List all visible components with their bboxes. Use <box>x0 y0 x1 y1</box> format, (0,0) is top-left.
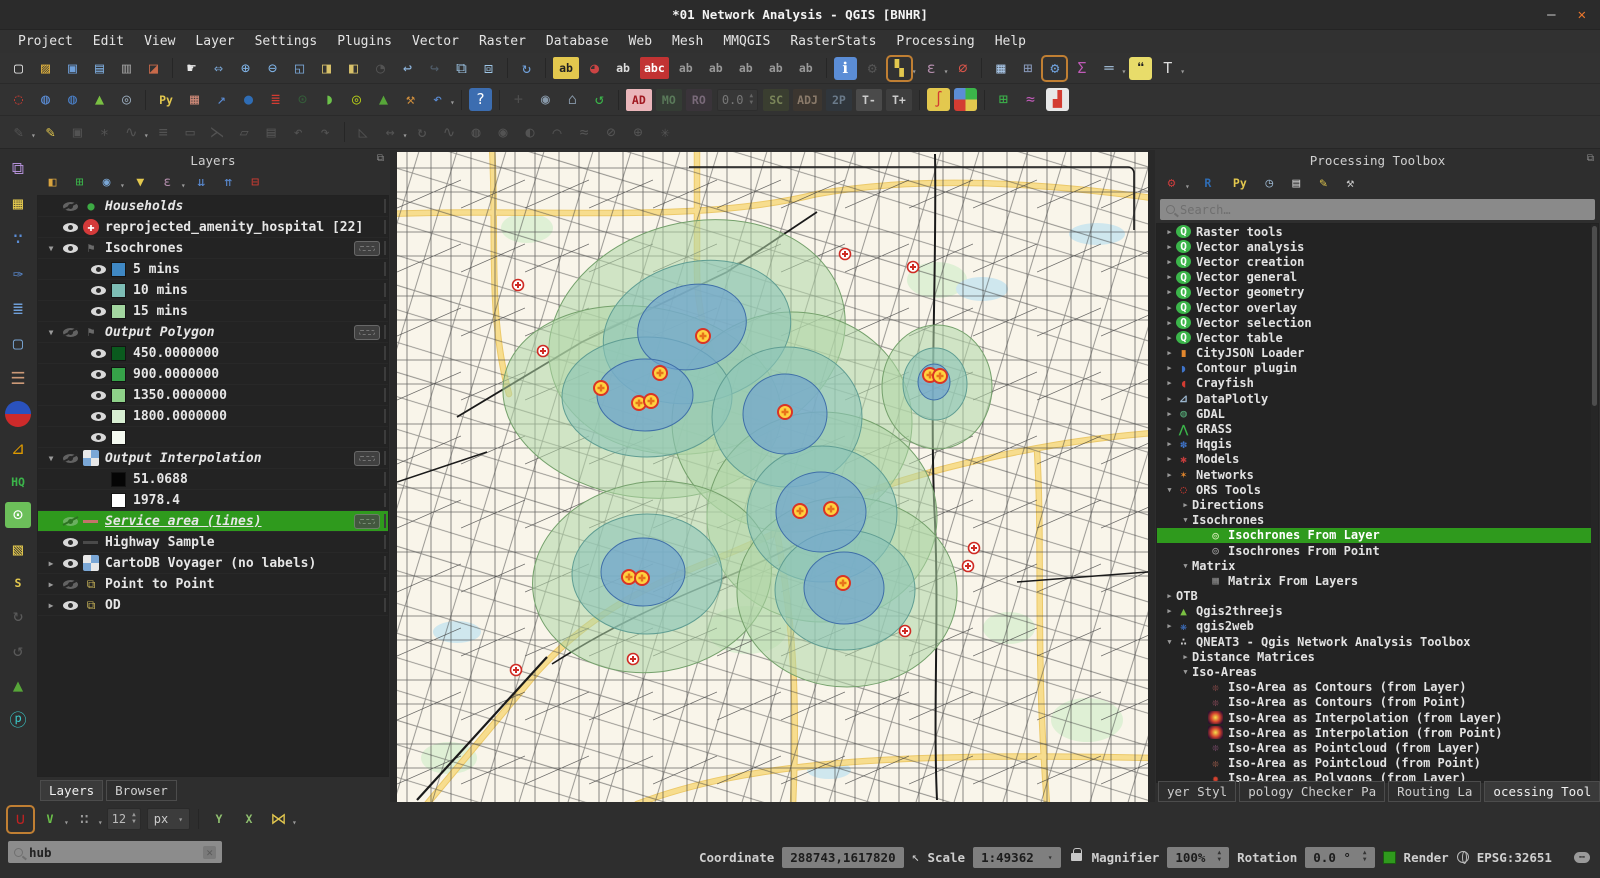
zoom-last-icon[interactable]: ↩ <box>396 57 419 80</box>
qgis2threejs-icon[interactable]: ▲ <box>88 88 111 111</box>
angle-spin[interactable]: 0.0▲▼ <box>717 89 758 111</box>
deselect-all-icon[interactable]: ∅ <box>951 57 974 80</box>
add-part-icon[interactable]: ◉ <box>491 121 514 144</box>
current-edits-icon[interactable]: ✎ <box>7 121 30 144</box>
layer-row-highway-sample[interactable]: Highway Sample <box>38 532 388 553</box>
select-features-dropdown-icon[interactable]: ▾ <box>912 67 917 76</box>
visibility-eye-icon[interactable] <box>91 391 106 400</box>
undo-plugin-dropdown-icon[interactable]: ▾ <box>450 98 455 107</box>
layer-row-5-mins[interactable]: 5 mins <box>38 259 388 280</box>
models-menu-dropdown-icon[interactable]: ▾ <box>1185 182 1190 191</box>
layout-manager-icon[interactable]: ▥ <box>115 57 138 80</box>
processing-search-input[interactable] <box>1180 203 1589 217</box>
add-delimited-text-icon[interactable]: ∵ <box>5 226 31 252</box>
measure-dropdown-icon[interactable]: ▾ <box>1121 67 1126 76</box>
rotation-spin[interactable]: 0.0 °▲▼ <box>1305 847 1374 868</box>
expander-icon[interactable]: ▶ <box>1163 471 1176 479</box>
undo-plugin-icon[interactable]: ↶ <box>426 88 449 111</box>
vertex-tool-icon[interactable]: ◺ <box>352 121 375 144</box>
algorithm-row-grass[interactable]: ▶⋀GRASS <box>1157 421 1598 436</box>
paste-features-icon[interactable]: ▤ <box>260 121 283 144</box>
history-icon[interactable]: ◷ <box>1259 173 1280 194</box>
menu-vector[interactable]: Vector <box>402 32 469 51</box>
expander-icon[interactable]: ▼ <box>44 244 58 253</box>
expander-icon[interactable]: ▶ <box>1163 592 1176 600</box>
text-annotation-dropdown-icon[interactable]: ▾ <box>1180 67 1185 76</box>
self-snapping-dropdown-icon[interactable]: ▾ <box>292 818 297 827</box>
new-map-view-icon[interactable]: ⧉ <box>450 57 473 80</box>
add-raster-layer-icon[interactable]: ▦ <box>5 191 31 217</box>
cityjson-loader-icon[interactable]: ⊿ <box>5 436 31 462</box>
expander-icon[interactable]: ▶ <box>1163 273 1176 281</box>
snapping-mode-dropdown-icon[interactable]: ▾ <box>64 818 69 827</box>
expander-icon[interactable]: ▶ <box>1163 228 1176 236</box>
new-3d-map-view-icon[interactable]: ⧈ <box>477 57 500 80</box>
visibility-eye-icon[interactable] <box>91 349 106 358</box>
algorithm-row-vector-table[interactable]: ▶QVector table <box>1157 330 1598 345</box>
algorithm-row-ors-tools[interactable]: ▼◌ORS Tools <box>1157 482 1598 497</box>
expander-icon[interactable]: ▶ <box>1163 288 1176 296</box>
layer-row-symbol[interactable] <box>38 427 388 448</box>
expander-icon[interactable]: ▶ <box>1163 607 1176 615</box>
visibility-eye-icon[interactable] <box>63 580 78 589</box>
add-delimited-table-icon[interactable]: ⊞ <box>992 88 1015 111</box>
filter-by-expression-dropdown-icon[interactable]: ▾ <box>181 181 186 190</box>
algorithm-row-isochrones-from-layer[interactable]: ◎Isochrones From Layer <box>1157 528 1598 543</box>
dock-tab-ocessing-tool[interactable]: ocessing Tool <box>1484 781 1600 802</box>
snapping-toggle-icon[interactable]: ∪ <box>8 807 33 832</box>
delete-selected-icon[interactable]: ▭ <box>179 121 202 144</box>
statistical-summary-icon[interactable]: Σ <box>1070 57 1093 80</box>
label-tool-5-button[interactable]: ab <box>793 57 819 79</box>
lock-scale-icon[interactable] <box>1071 853 1082 861</box>
menu-edit[interactable]: Edit <box>83 32 134 51</box>
simplify-feature-icon[interactable]: ∿ <box>437 121 460 144</box>
menu-project[interactable]: Project <box>8 32 83 51</box>
pan-to-selection-icon[interactable]: ⇔ <box>207 57 230 80</box>
topological-editing-button[interactable]: Y <box>206 808 232 830</box>
mmqgis-search-globe-icon[interactable]: ◍ <box>61 88 84 111</box>
algorithm-row-iso-area-as-interpolation-from-point-[interactable]: Iso-Area as Interpolation (from Point) <box>1157 725 1598 740</box>
expander-icon[interactable]: ▶ <box>1163 395 1176 403</box>
scale-combo[interactable]: 1:49362▾ <box>973 847 1061 868</box>
algorithm-row-isochrones-from-point[interactable]: ◎Isochrones From Point <box>1157 543 1598 558</box>
layer-row-service-area-lines-[interactable]: Service area (lines) <box>38 511 388 532</box>
layer-row-1350-0000000[interactable]: 1350.0000000 <box>38 385 388 406</box>
visibility-eye-icon[interactable] <box>63 328 78 337</box>
2p-tool-button[interactable]: 2P <box>826 89 852 111</box>
gps-telescope-icon[interactable]: ◉ <box>534 88 557 111</box>
visibility-eye-icon[interactable] <box>91 286 106 295</box>
models-menu-icon[interactable]: ⚙ <box>1161 173 1182 194</box>
reshape-features-icon[interactable]: ⌒ <box>545 121 568 144</box>
save-edits-icon[interactable]: ▣ <box>66 121 89 144</box>
save-project-icon[interactable]: ▣ <box>61 57 84 80</box>
quickosm-icon[interactable]: ▧ <box>5 537 31 563</box>
show-labels-button[interactable]: ab <box>553 57 579 79</box>
layer-indicator-badge[interactable] <box>354 241 380 256</box>
crosshair-tool-icon[interactable]: + <box>507 88 530 111</box>
python-scripts-button[interactable]: Py <box>1227 172 1253 194</box>
visibility-eye-icon[interactable] <box>91 412 106 421</box>
zoom-to-selection-icon[interactable]: ◨ <box>315 57 338 80</box>
algorithm-row-vector-creation[interactable]: ▶QVector creation <box>1157 254 1598 269</box>
processing-search[interactable] <box>1160 199 1595 220</box>
measure-icon[interactable]: ═ <box>1097 57 1120 80</box>
algorithm-row-matrix[interactable]: ▼Matrix <box>1157 558 1598 573</box>
algorithm-row-qgis2threejs[interactable]: ▶▲Qgis2threejs <box>1157 604 1598 619</box>
algorithm-row-matrix-from-layers[interactable]: ▦Matrix From Layers <box>1157 573 1598 588</box>
layer-indicator-badge[interactable] <box>354 325 380 340</box>
refresh-map-icon[interactable]: ↻ <box>515 57 538 80</box>
current-edits-dropdown-icon[interactable]: ▾ <box>31 131 36 140</box>
layer-row-10-mins[interactable]: 10 mins <box>38 280 388 301</box>
algorithm-row-vector-selection[interactable]: ▶QVector selection <box>1157 315 1598 330</box>
visibility-eye-icon[interactable] <box>63 601 78 610</box>
zoom-next-icon[interactable]: ↪ <box>423 57 446 80</box>
expander-icon[interactable]: ▶ <box>1163 304 1176 312</box>
coordinate-field[interactable]: 288743,1617820 <box>782 847 903 868</box>
expander-icon[interactable]: ▶ <box>1163 455 1176 463</box>
algorithm-row-iso-areas[interactable]: ▼Iso-Areas <box>1157 664 1598 679</box>
processing-scrollbar[interactable] <box>1591 224 1598 782</box>
user-profile-flag-icon[interactable] <box>5 401 31 427</box>
layer-row-reprojected-amenity-hospital-22-[interactable]: ✚reprojected_amenity_hospital [22] <box>38 217 388 238</box>
locator-input[interactable] <box>29 845 197 860</box>
algorithm-row-qneat3-qgis-network-analysis-toolbox[interactable]: ▼∴QNEAT3 - Qgis Network Analysis Toolbox <box>1157 634 1598 649</box>
expander-icon[interactable]: ▼ <box>44 454 58 463</box>
snapping-mode-button[interactable]: V <box>37 808 63 830</box>
adj-tool-button[interactable]: ADJ <box>793 89 822 111</box>
layer-row-cartodb-voyager-no-labels-[interactable]: ▶CartoDB Voyager (no labels) <box>38 553 388 574</box>
undo-view-icon[interactable]: ↺ <box>5 638 31 664</box>
label-ab-pin-button[interactable]: ab <box>610 57 636 79</box>
expander-icon[interactable]: ▶ <box>1163 243 1176 251</box>
contour-plugin-icon[interactable]: ◎ <box>345 88 368 111</box>
sc-tool-button[interactable]: SC <box>763 89 789 111</box>
layer-row-51-0688[interactable]: 51.0688 <box>38 469 388 490</box>
python-console-button[interactable]: Py <box>153 89 179 111</box>
visibility-eye-icon[interactable] <box>63 202 78 211</box>
modify-attributes-icon[interactable]: ≡ <box>152 121 175 144</box>
rotate-feature-icon[interactable]: ↻ <box>410 121 433 144</box>
pan-map-icon[interactable]: ☛ <box>180 57 203 80</box>
algorithm-row-contour-plugin[interactable]: ▶◗Contour plugin <box>1157 361 1598 376</box>
expander-icon[interactable]: ▶ <box>1179 501 1192 509</box>
map-canvas[interactable] <box>397 152 1148 802</box>
layer-row-isochrones[interactable]: ▼⚑Isochrones <box>38 238 388 259</box>
open-project-icon[interactable]: ▨ <box>34 57 57 80</box>
ors-tools-icon[interactable]: ◌ <box>7 88 30 111</box>
add-geopackage-icon[interactable]: ✑ <box>5 261 31 287</box>
new-print-layout-icon[interactable]: ▤ <box>88 57 111 80</box>
expander-icon[interactable]: ▼ <box>1179 668 1192 676</box>
digitize-point-icon[interactable]: ∗ <box>93 121 116 144</box>
label-tool-2-button[interactable]: ab <box>703 57 729 79</box>
expander-icon[interactable]: ▶ <box>1163 334 1176 342</box>
sld-styles-icon[interactable] <box>954 88 977 111</box>
text-annotation-icon[interactable]: T <box>1156 57 1179 80</box>
copy-features-icon[interactable]: ▱ <box>233 121 256 144</box>
algorithm-row-iso-area-as-contours-from-point-[interactable]: ❊Iso-Area as Contours (from Point) <box>1157 695 1598 710</box>
menu-settings[interactable]: Settings <box>245 32 328 51</box>
expander-icon[interactable]: ▶ <box>44 559 58 568</box>
visibility-eye-icon[interactable] <box>91 265 106 274</box>
snapping-intersection-button[interactable]: X <box>236 808 262 830</box>
filter-by-expression-icon[interactable]: ε <box>157 172 178 193</box>
expander-icon[interactable]: ▶ <box>1163 622 1176 630</box>
layer-indicator-badge[interactable] <box>354 451 380 466</box>
algorithm-row-raster-tools[interactable]: ▶QRaster tools <box>1157 224 1598 239</box>
run-feature-action-icon[interactable]: ⚙ <box>861 57 884 80</box>
layer-row-point-to-point[interactable]: ▶⧉Point to Point <box>38 574 388 595</box>
expander-icon[interactable]: ▶ <box>1163 319 1176 327</box>
dock-tab-browser[interactable]: Browser <box>106 780 177 801</box>
label-tool-3-button[interactable]: ab <box>733 57 759 79</box>
refresh-attributes-icon[interactable]: ↺ <box>588 88 611 111</box>
collapse-all-icon[interactable]: ⇈ <box>218 172 239 193</box>
label-tool-1-button[interactable]: ab <box>673 57 699 79</box>
redo-icon[interactable]: ↷ <box>314 121 337 144</box>
layer-indicator-badge[interactable] <box>354 514 380 529</box>
expander-icon[interactable]: ▶ <box>1163 364 1176 372</box>
algorithm-row-distance-matrices[interactable]: ▶Distance Matrices <box>1157 649 1598 664</box>
expander-icon[interactable]: ▶ <box>1163 379 1176 387</box>
self-snapping-icon[interactable]: ⋈ <box>266 807 291 832</box>
edit-features-in-place-icon[interactable]: ✎ <box>1313 173 1334 194</box>
osm-place-search-icon[interactable]: ⊙ <box>5 502 31 528</box>
select-by-expression-icon[interactable]: ε <box>920 57 943 80</box>
add-vector-layer-icon[interactable]: ⧉ <box>5 156 31 182</box>
algorithm-row-directions[interactable]: ▶Directions <box>1157 497 1598 512</box>
clear-icon[interactable]: ✕ <box>203 846 216 859</box>
layer-row-15-mins[interactable]: 15 mins <box>38 301 388 322</box>
minimize-button[interactable]: – <box>1547 7 1555 23</box>
algorithm-row-iso-area-as-pointcloud-from-point-[interactable]: ❊Iso-Area as Pointcloud (from Point) <box>1157 756 1598 771</box>
processing-toolbox-icon[interactable]: ⚙ <box>1043 57 1066 80</box>
menu-raster[interactable]: Raster <box>469 32 536 51</box>
label-tool-4-button[interactable]: ab <box>763 57 789 79</box>
expander-icon[interactable]: ▶ <box>1163 410 1176 418</box>
expander-icon[interactable]: ▼ <box>1179 562 1192 570</box>
layer-row-output-interpolation[interactable]: ▼Output Interpolation <box>38 448 388 469</box>
crayfish-layers-icon[interactable]: ≣ <box>264 88 287 111</box>
layer-row-1800-0000000[interactable]: 1800.0000000 <box>38 406 388 427</box>
expander-icon[interactable]: ▶ <box>44 601 58 610</box>
label-pin-chart-icon[interactable]: ◕ <box>583 57 606 80</box>
move-feature-dropdown-icon[interactable]: ▾ <box>403 131 408 140</box>
visibility-eye-icon[interactable] <box>63 559 78 568</box>
algorithm-row-vector-overlay[interactable]: ▶QVector overlay <box>1157 300 1598 315</box>
reload-map-icon[interactable]: ↻ <box>5 603 31 629</box>
menu-mesh[interactable]: Mesh <box>662 32 713 51</box>
undock-icon[interactable]: ⧉ <box>1587 153 1594 164</box>
menu-web[interactable]: Web <box>619 32 662 51</box>
gee-connector-icon[interactable]: ▲ <box>5 673 31 699</box>
raster-histogram-icon[interactable]: ▟ <box>1046 88 1069 111</box>
expander-icon[interactable]: ▶ <box>1163 258 1176 266</box>
r-scripts-button[interactable]: R <box>1195 172 1221 194</box>
algorithm-row-networks[interactable]: ▶✶Networks <box>1157 467 1598 482</box>
messages-icon[interactable]: ⋯ <box>1574 852 1590 863</box>
expander-icon[interactable]: ▶ <box>1163 440 1176 448</box>
menu-processing[interactable]: Processing <box>886 32 984 51</box>
add-virtual-layer-icon[interactable]: ▢ <box>5 331 31 357</box>
close-button[interactable]: ✕ <box>1578 7 1586 23</box>
right-splitter[interactable] <box>1148 150 1155 802</box>
dataplotly-icon[interactable]: ↗ <box>210 88 233 111</box>
zoom-to-layer-icon[interactable]: ◧ <box>342 57 365 80</box>
menu-layer[interactable]: Layer <box>185 32 244 51</box>
field-calculator-icon[interactable]: ⊞ <box>1016 57 1039 80</box>
layer-row-1978-4[interactable]: 1978.4 <box>38 490 388 511</box>
snapping-units[interactable]: px▾ <box>147 808 190 830</box>
split-features-icon[interactable]: ⋋ <box>206 121 229 144</box>
dock-tab-yer-styl[interactable]: yer Styl <box>1158 781 1236 802</box>
left-splitter[interactable] <box>390 150 397 802</box>
snapping-type-icon[interactable]: ∷ <box>72 807 97 832</box>
ro-tool-button[interactable]: RO <box>686 89 712 111</box>
osm-search-icon[interactable]: ⊙ <box>291 88 314 111</box>
terrain-shading-icon[interactable]: ▲ <box>372 88 395 111</box>
options-wrench-icon[interactable]: ⚒ <box>1340 173 1361 194</box>
menu-plugins[interactable]: Plugins <box>327 32 402 51</box>
visibility-eye-icon[interactable] <box>63 223 78 232</box>
mmqgis-add-globe-icon[interactable]: ◍ <box>34 88 57 111</box>
zoom-in-icon[interactable]: ⊕ <box>234 57 257 80</box>
profile-plot-icon[interactable]: ≈ <box>1019 88 1042 111</box>
mo-tool-button[interactable]: MO <box>656 89 682 111</box>
algorithm-row-qgis2web[interactable]: ▶❋qgis2web <box>1157 619 1598 634</box>
visibility-eye-icon[interactable] <box>91 370 106 379</box>
zoom-full-icon[interactable]: ◱ <box>288 57 311 80</box>
zoom-out-icon[interactable]: ⊖ <box>261 57 284 80</box>
algorithm-row-hqgis[interactable]: ▶✽Hqgis <box>1157 437 1598 452</box>
visibility-eye-icon[interactable] <box>63 517 78 526</box>
expander-icon[interactable]: ▶ <box>1163 425 1176 433</box>
bezier-tool-icon[interactable]: ∫ <box>927 88 950 111</box>
algorithm-row-otb[interactable]: ▶OTB <box>1157 589 1598 604</box>
layer-row-450-0000000[interactable]: 450.0000000 <box>38 343 388 364</box>
select-features-icon[interactable]: ▚ <box>888 57 911 80</box>
algorithm-row-dataplotly[interactable]: ▶⊿DataPlotly <box>1157 391 1598 406</box>
qgis-globe-icon[interactable]: ● <box>237 88 260 111</box>
merge-features-icon[interactable]: ⊕ <box>626 121 649 144</box>
expander-icon[interactable]: ▼ <box>44 328 58 337</box>
p-logo-icon[interactable]: ⓟ <box>5 708 31 734</box>
visibility-eye-icon[interactable] <box>91 307 106 316</box>
split-parts-icon[interactable]: ⊘ <box>599 121 622 144</box>
map-tips-icon[interactable]: ❝ <box>1129 57 1152 80</box>
algorithm-row-crayfish[interactable]: ▶◖Crayfish <box>1157 376 1598 391</box>
street-view-button[interactable]: S <box>5 572 31 594</box>
expander-icon[interactable]: ▶ <box>1163 349 1176 357</box>
move-feature-icon[interactable]: ↔ <box>379 121 402 144</box>
locator-search[interactable]: ✕ <box>8 841 222 863</box>
manage-map-themes-icon[interactable]: ◉ <box>96 172 117 193</box>
algorithm-row-vector-general[interactable]: ▶QVector general <box>1157 270 1598 285</box>
algorithm-row-vector-analysis[interactable]: ▶QVector analysis <box>1157 239 1598 254</box>
render-checkbox[interactable] <box>1383 851 1396 864</box>
offset-curve-icon[interactable]: ≈ <box>572 121 595 144</box>
expand-all-icon[interactable]: ⇊ <box>191 172 212 193</box>
dock-tab-layers[interactable]: Layers <box>40 780 103 801</box>
expander-icon[interactable]: ▼ <box>1163 638 1176 646</box>
select-by-expression-dropdown-icon[interactable]: ▾ <box>944 67 949 76</box>
build-tools-icon[interactable]: ⚒ <box>399 88 422 111</box>
algorithm-row-models[interactable]: ▶✱Models <box>1157 452 1598 467</box>
add-ring-icon[interactable]: ◍ <box>464 121 487 144</box>
visibility-eye-icon[interactable] <box>63 454 78 463</box>
algorithm-row-cityjson-loader[interactable]: ▶∎CityJSON Loader <box>1157 346 1598 361</box>
digitize-segment-dropdown-icon[interactable]: ▾ <box>144 131 149 140</box>
add-group-icon[interactable]: ⊞ <box>69 172 90 193</box>
menu-database[interactable]: Database <box>536 32 619 51</box>
dock-tab-routing-la[interactable]: Routing La <box>1388 781 1481 802</box>
algorithm-row-iso-area-as-interpolation-from-layer-[interactable]: Iso-Area as Interpolation (from Layer) <box>1157 710 1598 725</box>
expander-icon[interactable]: ▼ <box>1179 516 1192 524</box>
algorithm-row-gdal[interactable]: ▶◍GDAL <box>1157 406 1598 421</box>
manage-map-themes-dropdown-icon[interactable]: ▾ <box>120 181 125 190</box>
menu-rasterstats[interactable]: RasterStats <box>780 32 886 51</box>
expander-icon[interactable]: ▶ <box>1179 653 1192 661</box>
hqgis-button[interactable]: HQ <box>5 471 31 493</box>
zoom-native-icon[interactable]: ◔ <box>369 57 392 80</box>
add-postgis-icon[interactable]: ≣ <box>5 296 31 322</box>
new-project-icon[interactable]: ▢ <box>7 57 30 80</box>
magnifier-spin[interactable]: 100%▲▼ <box>1167 847 1229 868</box>
label-abc-red-button[interactable]: abc <box>640 57 669 79</box>
style-manager-icon[interactable]: ◪ <box>142 57 165 80</box>
filter-legend-icon[interactable]: ▼ <box>130 172 151 193</box>
snapping-tolerance[interactable]: 12▲▼ <box>107 808 141 830</box>
menu-view[interactable]: View <box>134 32 185 51</box>
visibility-eye-icon[interactable] <box>91 433 106 442</box>
crs-status[interactable]: EPSG:32651 <box>1477 850 1552 865</box>
help-contents-icon[interactable]: ? <box>469 88 492 111</box>
add-wms-icon[interactable]: ☰ <box>5 366 31 392</box>
visibility-eye-icon[interactable] <box>63 538 78 547</box>
advanced-digitizing-button[interactable]: AD <box>626 89 652 111</box>
undock-icon[interactable]: ⧉ <box>377 153 384 164</box>
snapping-type-dropdown-icon[interactable]: ▾ <box>98 818 103 827</box>
layer-row-900-0000000[interactable]: 900.0000000 <box>38 364 388 385</box>
menu-help[interactable]: Help <box>985 32 1036 51</box>
fill-ring-icon[interactable]: ◐ <box>518 121 541 144</box>
toggle-editing-icon[interactable]: ✎ <box>39 121 62 144</box>
algorithm-row-vector-geometry[interactable]: ▶QVector geometry <box>1157 285 1598 300</box>
t-minus-tool-button[interactable]: T- <box>856 89 882 111</box>
attribute-grid-icon[interactable]: ▦ <box>183 88 206 111</box>
algorithm-row-isochrones[interactable]: ▼Isochrones <box>1157 513 1598 528</box>
remove-layer-icon[interactable]: ⊟ <box>245 172 266 193</box>
results-viewer-icon[interactable]: ▤ <box>1286 173 1307 194</box>
undo-icon[interactable]: ↶ <box>287 121 310 144</box>
t-plus-tool-button[interactable]: T+ <box>886 89 912 111</box>
visibility-eye-icon[interactable] <box>63 244 78 253</box>
area-pin-icon[interactable]: ⌂ <box>561 88 584 111</box>
interpolation-leaf-icon[interactable]: ◗ <box>318 88 341 111</box>
identify-features-icon[interactable]: ℹ <box>834 57 857 80</box>
open-layer-styling-icon[interactable]: ◧ <box>42 172 63 193</box>
extent-tracking-icon[interactable]: ↖ <box>912 850 920 865</box>
menu-mmqgis[interactable]: MMQGIS <box>713 32 780 51</box>
layer-row-households[interactable]: ●Households <box>38 196 388 217</box>
expander-icon[interactable]: ▼ <box>1163 486 1176 494</box>
search-layers-icon[interactable]: ◎ <box>115 88 138 111</box>
expander-icon[interactable]: ▶ <box>44 580 58 589</box>
digitize-segment-icon[interactable]: ∿ <box>120 121 143 144</box>
